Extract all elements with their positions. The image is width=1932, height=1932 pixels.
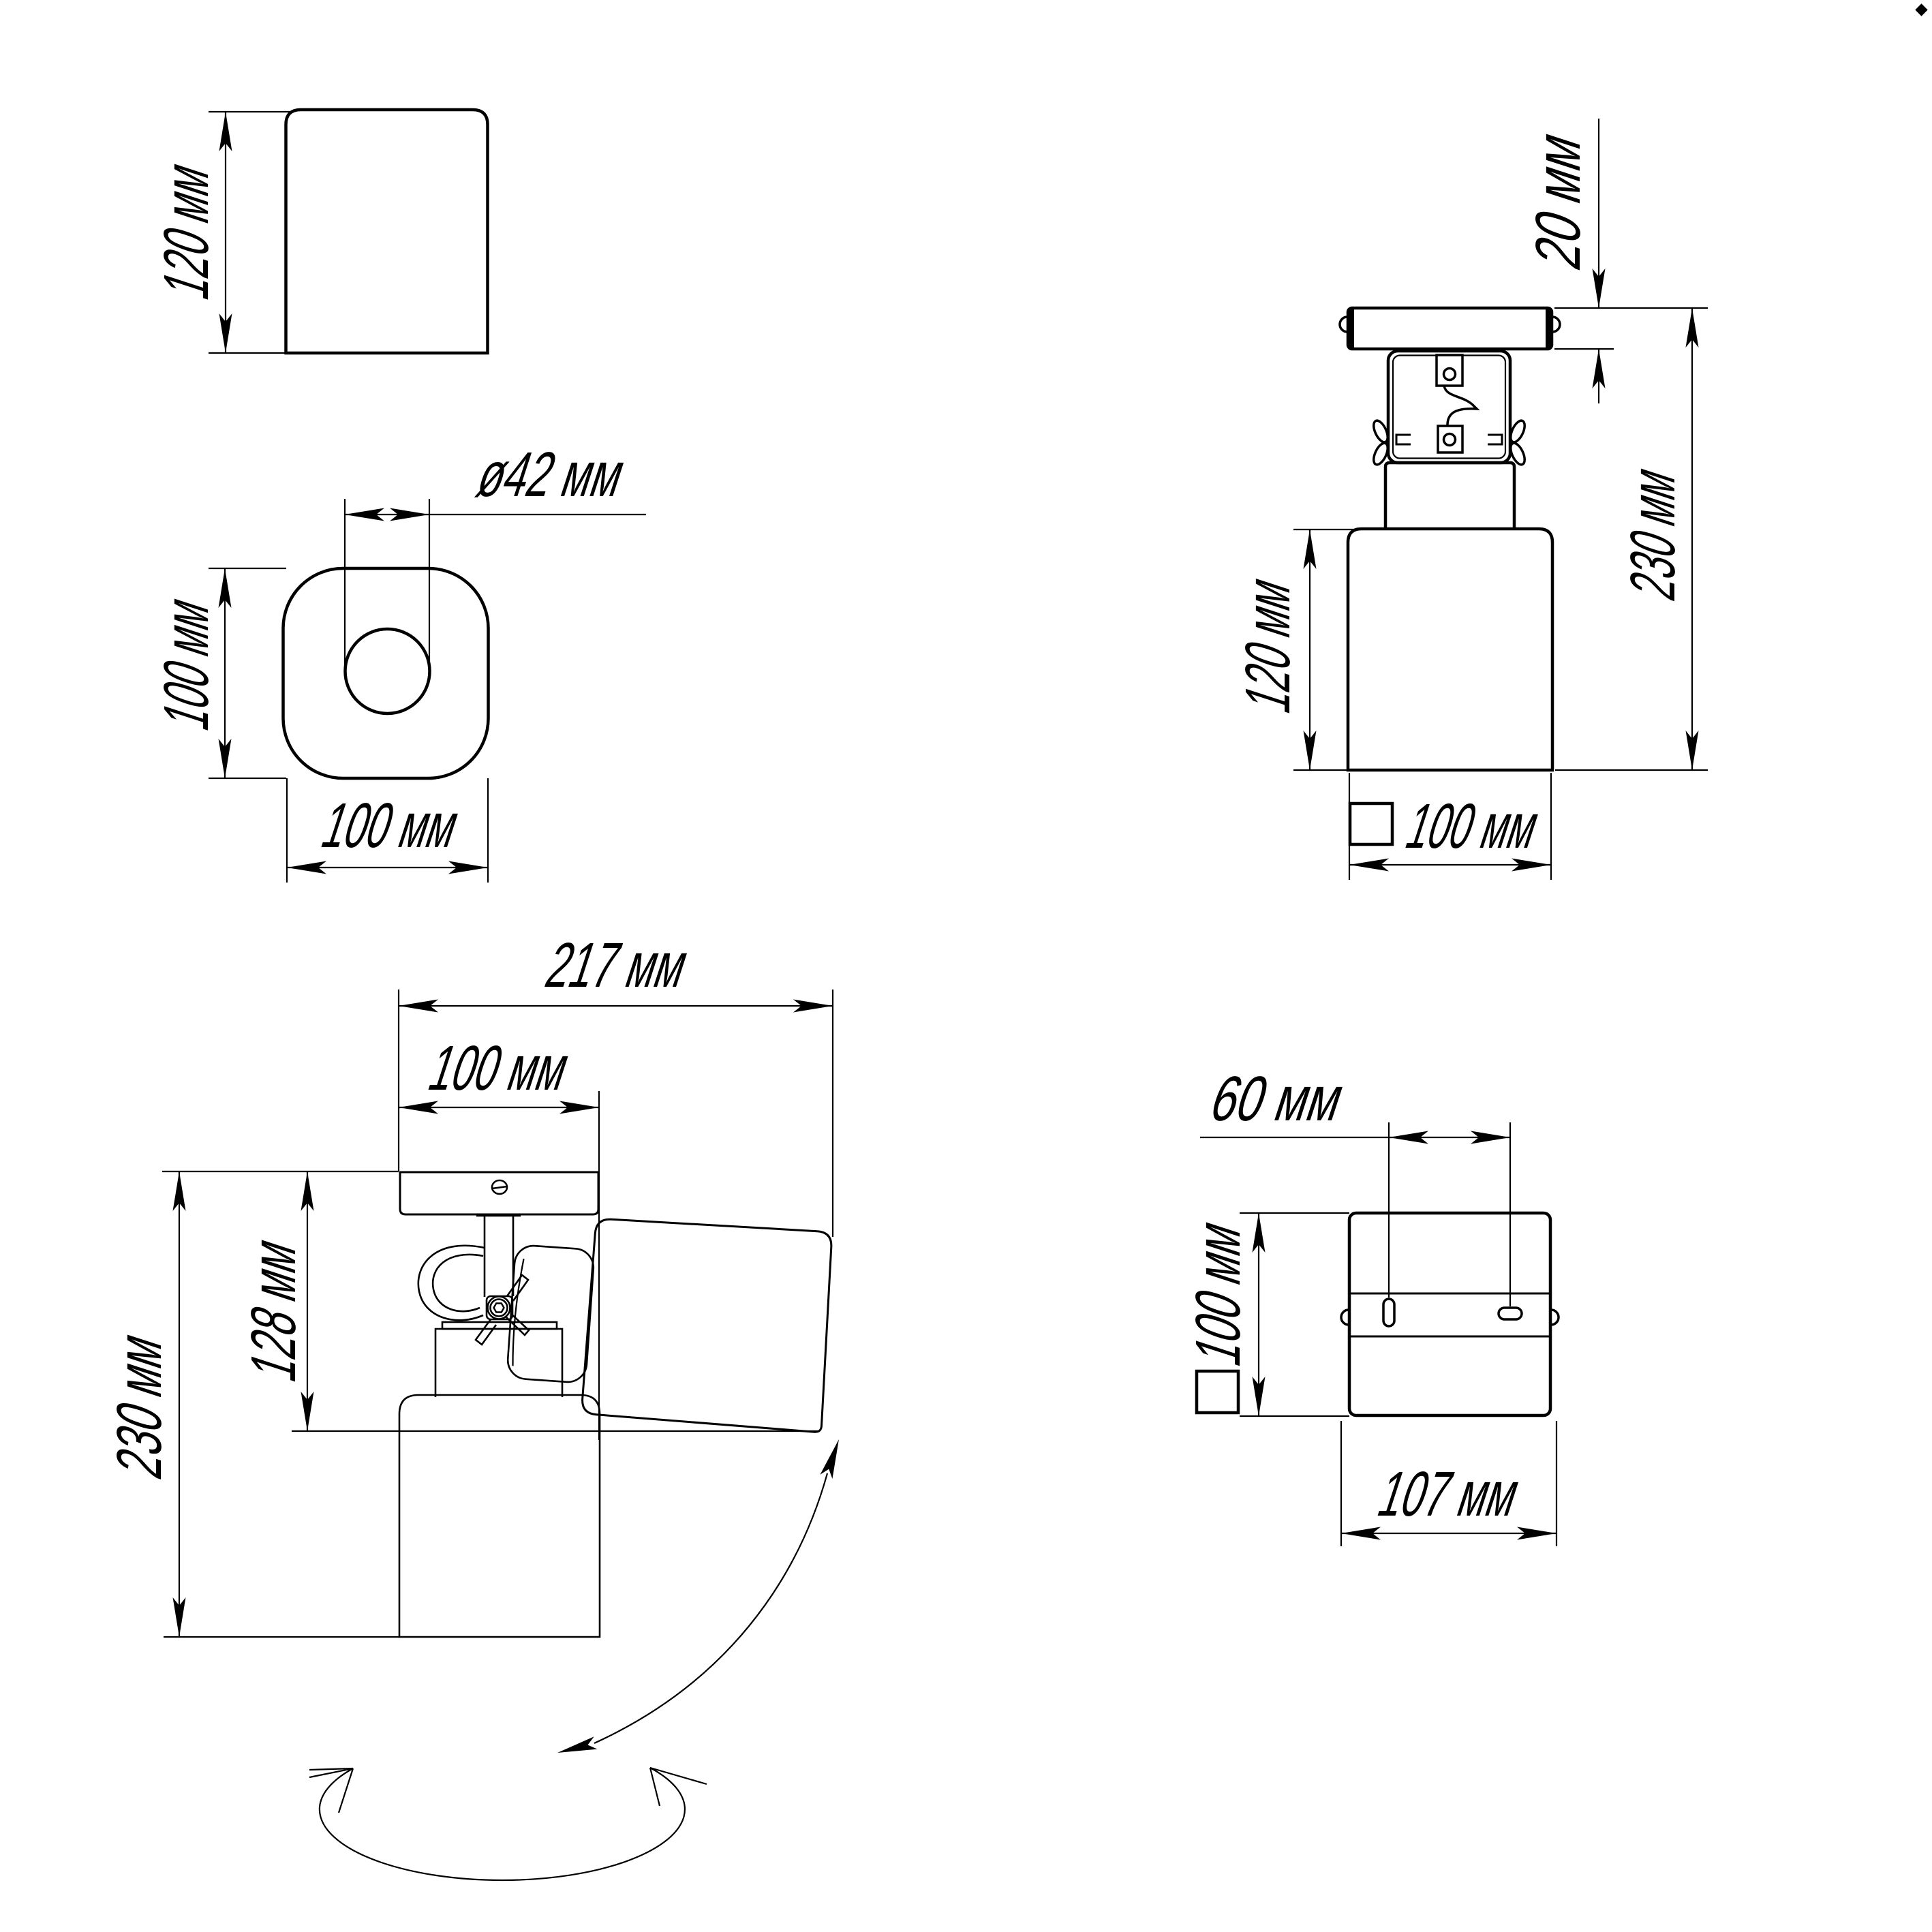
svg-text:230 мм: 230 мм — [1617, 458, 1688, 607]
svg-text:107 мм: 107 мм — [1370, 1459, 1529, 1529]
svg-text:120 мм: 120 мм — [1231, 568, 1302, 721]
svg-text:100 мм: 100 мм — [1398, 791, 1549, 861]
svg-text:20 мм: 20 мм — [1522, 123, 1593, 277]
svg-text:217 мм: 217 мм — [538, 930, 697, 1000]
svg-text:100 мм: 100 мм — [420, 1033, 578, 1103]
svg-text:100 мм: 100 мм — [151, 588, 221, 737]
svg-text:128 мм: 128 мм — [238, 1229, 309, 1390]
svg-text:230 мм: 230 мм — [104, 1324, 175, 1486]
svg-text:100 мм: 100 мм — [1183, 1212, 1254, 1374]
svg-text:120 мм: 120 мм — [151, 153, 222, 307]
svg-text:100 мм: 100 мм — [313, 791, 468, 861]
svg-text:60 мм: 60 мм — [1203, 1063, 1353, 1134]
svg-text:ø42 мм: ø42 мм — [469, 440, 634, 510]
